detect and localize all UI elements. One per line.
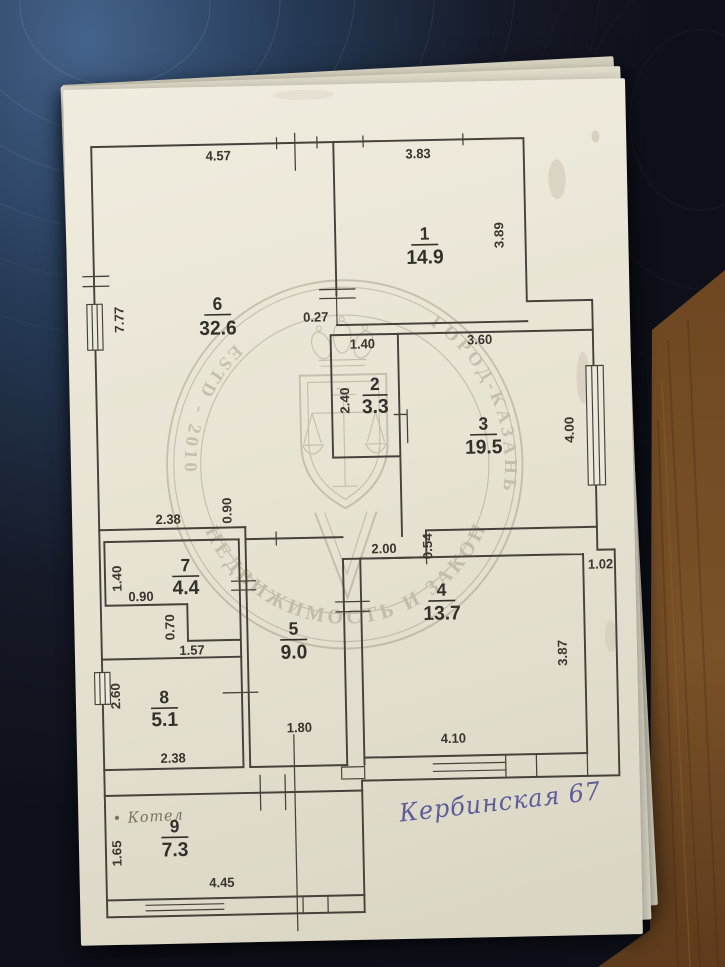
window-room3-right [586,365,606,485]
room-6-number: 6 [212,293,222,314]
room-4-area: 13.7 [423,602,461,625]
dim-room4-right: 3.87 [555,640,570,666]
window-room9-bottom [146,904,225,911]
room-7-number: 7 [180,555,190,576]
window-room6-left [87,304,103,350]
room-3-number: 3 [478,413,488,434]
room-1-area: 14.9 [406,246,444,269]
dim-room1-top: 3.83 [405,146,431,162]
dim-room6-left: 7.77 [112,307,127,333]
room-8-area: 5.1 [151,708,178,731]
dim-notch-070: 0.70 [162,614,177,640]
room-5-number: 5 [288,618,298,639]
dim-room8-left: 2.60 [108,683,123,709]
dim-room2-top: 1.40 [350,336,376,352]
room-1-number: 1 [419,223,429,244]
dim-hall-200: 2.00 [371,541,397,557]
ribbon-chevron [315,512,378,599]
room-4-number: 4 [437,579,447,600]
dim-room6-top: 4.57 [205,148,231,164]
dim-room3-top: 3.60 [467,332,493,348]
dim-room8-top: 1.57 [179,642,205,658]
room-3-area: 19.5 [465,436,503,459]
room-2-area: 3.3 [362,395,389,418]
room-7-area: 4.4 [172,577,199,600]
dim-room3-right: 4.00 [562,417,577,443]
dimension-labels: 4.57 3.83 7.77 3.89 0.27 1.40 2.40 3.60 … [95,140,620,892]
floor-plan-drawing: НЕДВИЖИМОСТЬ И ЗАКОН ГОРОД-КАЗАНЬ ESTD -… [63,78,643,946]
room-2-number: 2 [370,374,380,395]
room-9-area: 7.3 [162,839,189,862]
watermark-left-text: ESTD - 2010 [177,340,249,476]
dim-room6-bottom: 2.38 [155,511,181,527]
dim-room4-bottom: 4.10 [441,730,467,746]
dim-room8-bottom: 2.38 [160,750,186,766]
dim-room9-bottom: 4.45 [209,875,235,891]
dim-step-054: 0.54 [420,532,435,559]
dim-room7-bottom: 0.90 [128,589,154,605]
address-note: Кербинская 67 [397,776,603,828]
dim-room9-left: 1.65 [109,840,124,866]
dim-room7-left: 1.40 [109,565,124,591]
room-8-number: 8 [159,687,169,708]
dim-wall-027: 0.27 [303,309,329,325]
dim-room5-bottom: 1.80 [287,720,313,736]
dim-corridor-102: 1.02 [588,556,614,572]
photo-scene: НЕДВИЖИМОСТЬ И ЗАКОН ГОРОД-КАЗАНЬ ESTD -… [0,0,725,967]
room-6-area: 32.6 [199,317,237,340]
dim-room1-right: 3.89 [491,222,506,248]
dim-room2-left: 2.40 [337,387,352,413]
window-room4-bottom [433,762,506,771]
floorplan-sheet: НЕДВИЖИМОСТЬ И ЗАКОН ГОРОД-КАЗАНЬ ESTD -… [63,78,643,946]
room-5-area: 9.0 [280,641,307,664]
dim-step-090: 0.90 [219,497,234,523]
